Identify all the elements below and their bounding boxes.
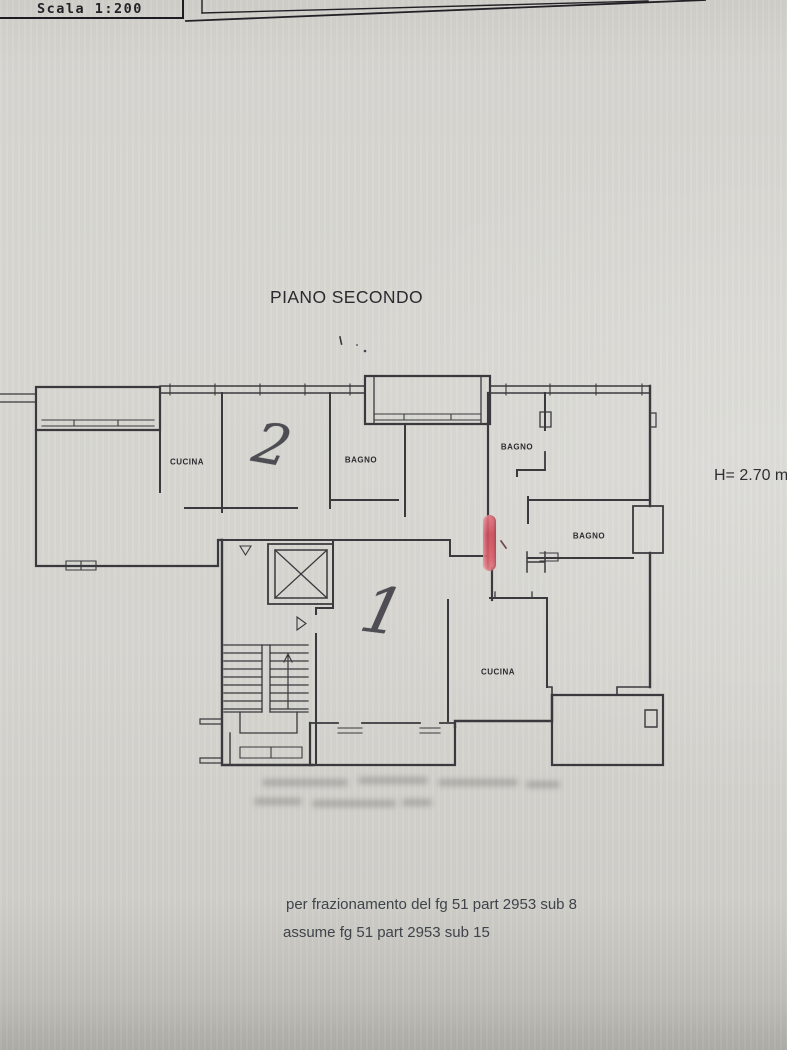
room-label-bagno-apt2: BAGNO [345, 456, 377, 465]
room-label-cucina-apt1: CUCINA [481, 668, 515, 677]
title-block-frame [186, 0, 705, 21]
scanned-page: Scala 1:200 [0, 0, 787, 1050]
room-label-bagno-right: BAGNO [573, 532, 605, 541]
floor-plan-drawing [0, 0, 787, 1050]
outer-walls [0, 376, 663, 765]
note-line-2: assume fg 51 part 2953 sub 15 [283, 924, 490, 941]
floor-title: PIANO SECONDO [270, 287, 423, 308]
stair-elevator-core [222, 540, 333, 765]
room-label-bagno-small: BAGNO [501, 443, 533, 452]
note-line-1: per frazionamento del fg 51 part 2953 su… [286, 896, 577, 913]
red-pen-tick [501, 541, 506, 548]
red-highlight-mark [483, 515, 496, 571]
height-label: H= 2.70 m [714, 467, 787, 485]
ink-specks [340, 337, 366, 352]
room-label-cucina-apt2: CUCINA [170, 458, 204, 467]
